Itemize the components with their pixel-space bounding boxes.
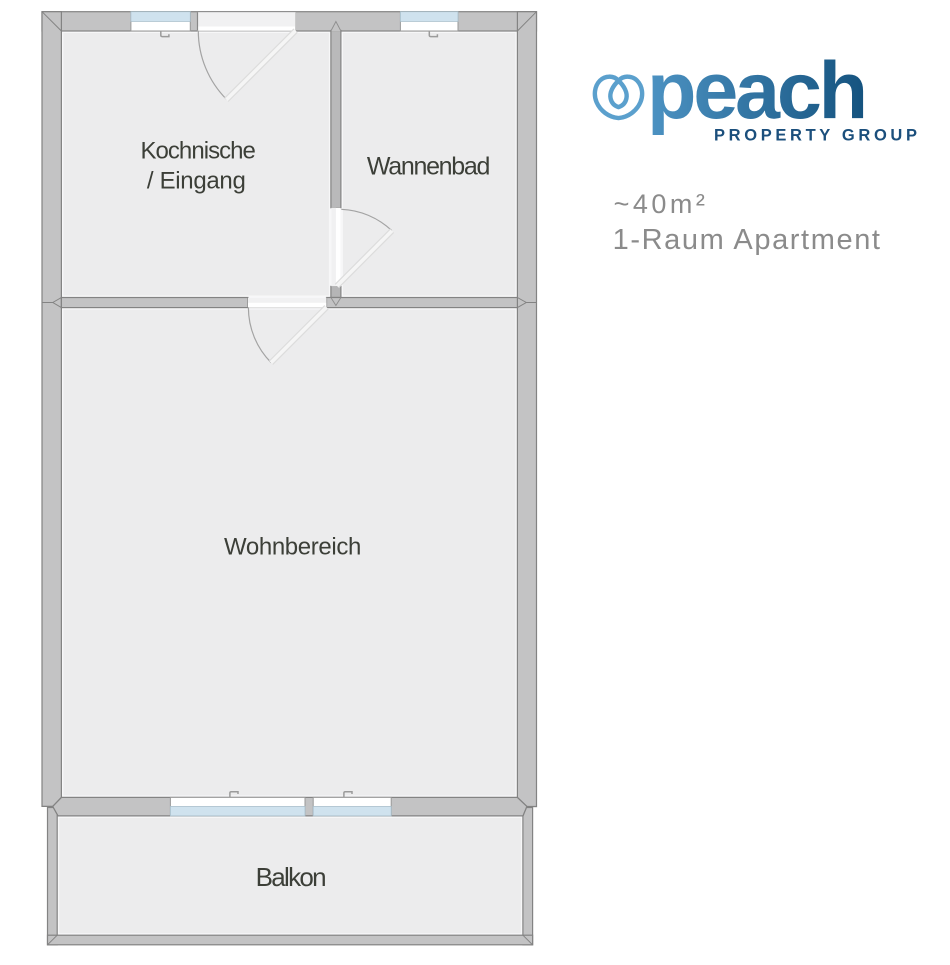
svg-text:Wohnbereich: Wohnbereich	[224, 533, 361, 560]
svg-text:peach: peach	[647, 46, 865, 136]
svg-text:/ Eingang: / Eingang	[147, 167, 246, 194]
svg-text:Wannenbad: Wannenbad	[367, 152, 490, 180]
svg-text:~40m²: ~40m²	[614, 189, 709, 219]
svg-text:1-Raum Apartment: 1-Raum Apartment	[613, 224, 882, 256]
svg-text:PROPERTY GROUP: PROPERTY GROUP	[714, 127, 921, 145]
svg-text:Kochnische: Kochnische	[140, 138, 255, 165]
svg-text:Balkon: Balkon	[256, 862, 326, 892]
